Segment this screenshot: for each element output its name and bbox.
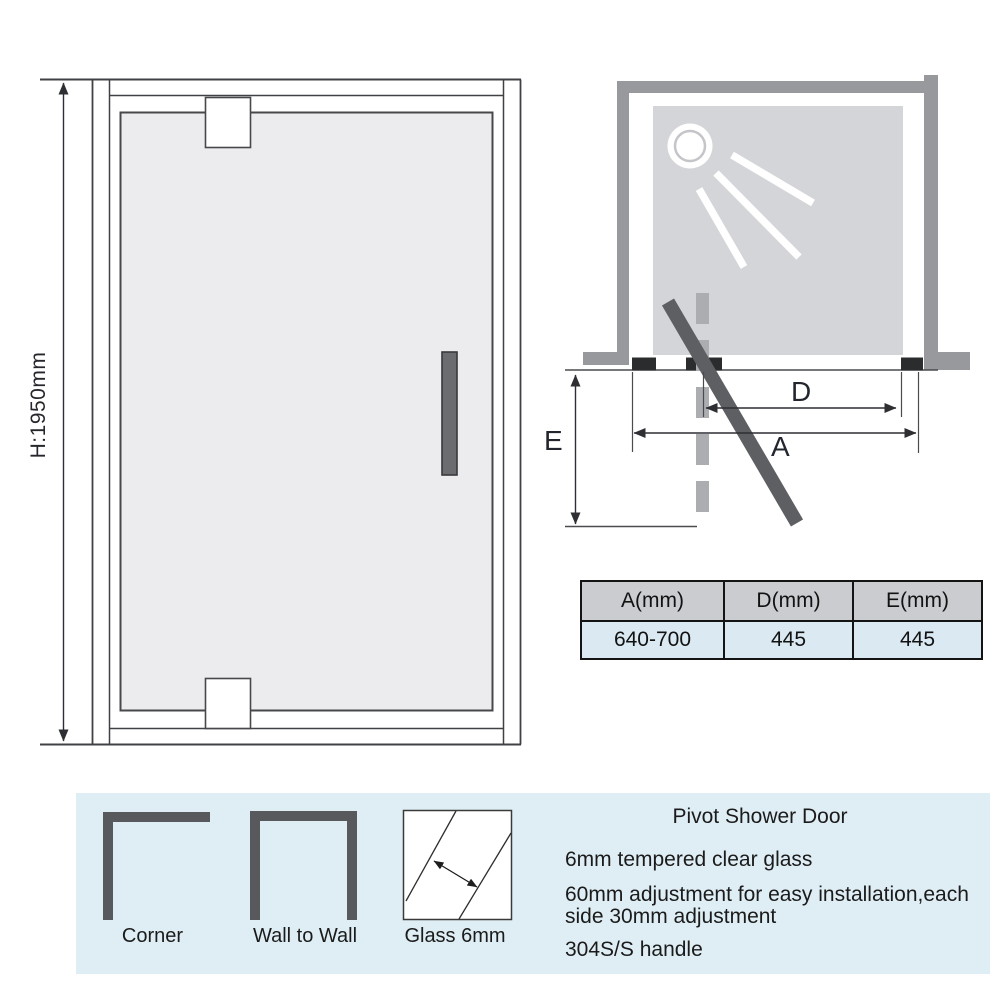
product-title: Pivot Shower Door	[600, 805, 920, 829]
dim-label-e: E	[544, 425, 563, 457]
size-table-header-a: A(mm)	[581, 581, 724, 621]
size-table: A(mm) D(mm) E(mm) 640-700 445 445	[580, 580, 983, 660]
installation-icons	[103, 811, 512, 921]
dim-label-d: D	[791, 376, 811, 408]
spec-handle: 304S/S handle	[565, 939, 703, 961]
glass-panel	[121, 113, 493, 711]
size-table-value-a: 640-700	[581, 621, 724, 659]
spec-adjustment: 60mm adjustment for easy installation,ea…	[565, 884, 995, 928]
top-pivot-bracket	[206, 98, 251, 148]
right-profile-bracket	[901, 358, 923, 371]
top-wall	[617, 81, 938, 93]
frame-profiles	[632, 358, 923, 371]
wall-to-wall-icon-label: Wall to Wall	[240, 925, 370, 948]
wall-to-wall-icon	[250, 811, 357, 920]
corner-icon-label: Corner	[90, 925, 215, 948]
right-wall	[924, 75, 938, 370]
glass-icon	[404, 811, 512, 920]
left-profile-bracket	[632, 358, 656, 371]
size-table-value-e: 445	[853, 621, 982, 659]
left-wall-stub	[583, 352, 629, 365]
pivot-shower-door-spec-sheet: H:1950mm D A E A(mm) D(mm) E(mm) 640-700…	[0, 0, 1000, 1000]
size-table-header-row: A(mm) D(mm) E(mm)	[581, 581, 982, 621]
height-dimension-label: H:1950mm	[27, 340, 49, 470]
extension-lines	[565, 372, 919, 527]
front-view-drawing	[40, 80, 521, 745]
size-table-header-e: E(mm)	[853, 581, 982, 621]
top-view-drawing	[565, 75, 970, 527]
size-table-data-row: 640-700 445 445	[581, 621, 982, 659]
left-wall	[617, 81, 629, 353]
technical-drawing	[0, 0, 1000, 1000]
bottom-pivot-bracket	[206, 679, 251, 729]
spec-glass: 6mm tempered clear glass	[565, 849, 812, 871]
door-handle	[442, 352, 457, 475]
right-wall-stub	[924, 352, 970, 370]
corner-icon	[103, 812, 210, 920]
glass-icon-label: Glass 6mm	[390, 925, 520, 948]
size-table-header-d: D(mm)	[724, 581, 853, 621]
size-table-value-d: 445	[724, 621, 853, 659]
dim-label-a: A	[771, 431, 790, 463]
